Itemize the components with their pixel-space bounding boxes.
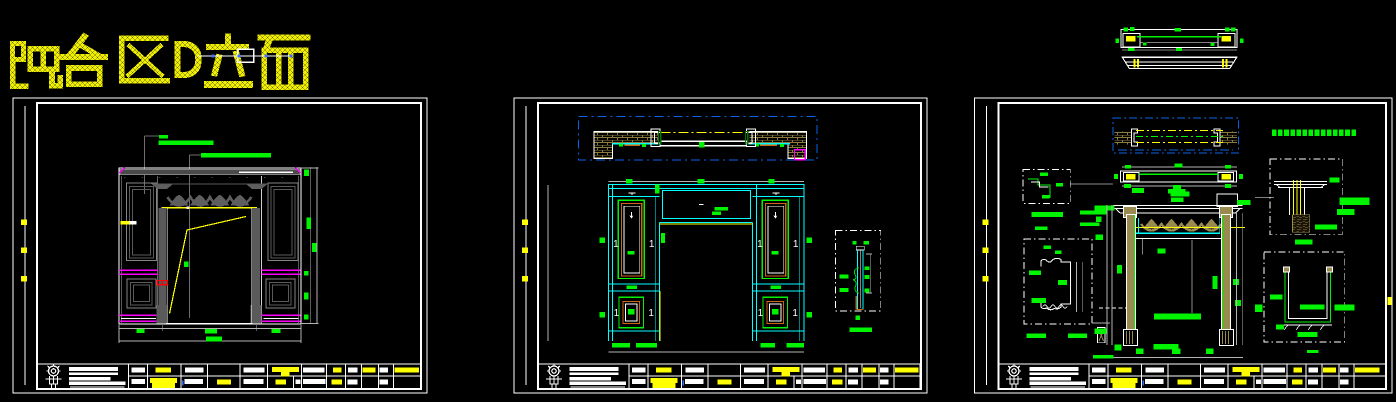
svg-text:1: 1 xyxy=(649,239,655,250)
svg-text:1: 1 xyxy=(792,308,798,319)
svg-text:1: 1 xyxy=(648,308,654,319)
svg-text:1: 1 xyxy=(614,308,620,319)
svg-text:1: 1 xyxy=(793,239,799,250)
svg-text:1: 1 xyxy=(757,239,763,250)
svg-text:1: 1 xyxy=(613,239,619,250)
svg-text:1: 1 xyxy=(758,308,764,319)
